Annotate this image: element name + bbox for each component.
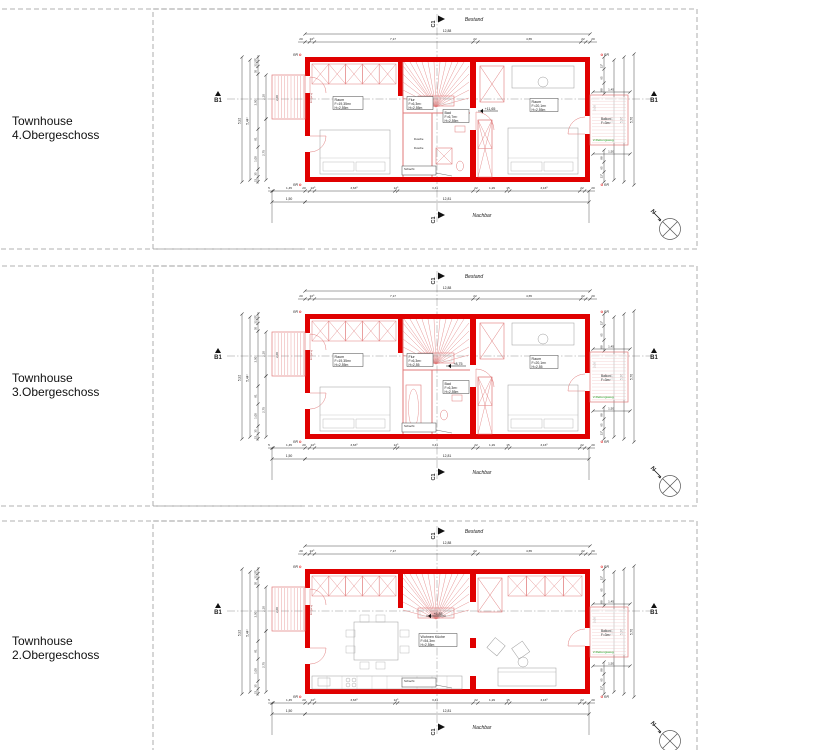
dim-label: 3,16⁵ [540, 698, 548, 702]
section-b1-marker: B1 [650, 98, 658, 104]
dim-label: 20 [591, 294, 595, 298]
balcony-dim: 2,00 [275, 95, 279, 101]
room-left-height: H=2,55m [335, 363, 349, 367]
rr-mark: RR [604, 310, 609, 314]
floorplan-townhouse-2og: C1BestandC1NachbarB1B112,882022⁵7,17224,… [152, 520, 698, 750]
floorplan-townhouse-3og: C1BestandC1NachbarB1B112,882022⁵7,17224,… [152, 265, 698, 507]
dim-label: 22 [581, 37, 585, 41]
dim-label: 1,45 [608, 88, 614, 92]
dim-label: 3,16⁵ [540, 443, 548, 447]
dim-label: 5,70 [630, 117, 634, 123]
drawing-sheet: Townhouse 4.Obergeschoss Townhouse 3.Obe… [0, 0, 818, 750]
dim-label: 12⁵ [394, 698, 399, 702]
rr-mark: RR [604, 440, 609, 444]
floorplan-townhouse-4og: C1BestandC1NachbarB1B112,882022⁵7,17224,… [152, 8, 698, 250]
dim-label: 20 [302, 186, 306, 190]
dim-label: 2,50 [254, 99, 258, 105]
dim-label: 1,29 [489, 186, 495, 190]
rr-mark: RR [604, 53, 609, 57]
dim-label: 5 [268, 698, 270, 702]
dim-label: 35 [254, 172, 258, 176]
section-c1-marker: C1 [431, 473, 437, 480]
dim-label: 81 [254, 137, 258, 141]
section-b1-marker: B1 [214, 355, 222, 361]
dim-label: 22 [580, 186, 584, 190]
dim-label: 88 [600, 156, 604, 160]
dim-label: 2,10 [262, 94, 266, 100]
dim-label: 5 [268, 186, 270, 190]
dim-label: 22 [474, 698, 478, 702]
dim-label: 3,63⁵ [350, 186, 358, 190]
dim-label: 15 [506, 443, 510, 447]
dim-label: 5,44⁵ [246, 374, 250, 382]
dim-label: 1,50 [286, 197, 293, 201]
dim-label: 20 [591, 698, 595, 702]
schacht-note: Schacht [404, 167, 415, 171]
dim-label: 22 [254, 63, 258, 67]
dim-label: 1,00 [254, 413, 258, 419]
section-b1-marker: B1 [214, 610, 222, 616]
nachbar-label: Nachbar [473, 213, 492, 219]
dim-label: 3,63⁵ [350, 698, 358, 702]
panel-title-3og: Townhouse 3.Obergeschoss [12, 371, 152, 399]
rr-mark: RR [604, 695, 609, 699]
balkon-area: F=3m² [601, 121, 610, 125]
entrance-note: Eingang [309, 349, 313, 360]
dim-label: 12,81 [443, 709, 452, 713]
schacht-note: Schacht [404, 424, 415, 428]
section-b1-marker: B1 [650, 355, 658, 361]
dim-label: 1,45 [286, 186, 292, 190]
rettungsweg-label: 2.Rettungsweg [593, 650, 614, 654]
dim-label: 20 [299, 37, 303, 41]
rr-mark: RR [293, 183, 298, 187]
section-b1-marker: B1 [650, 610, 658, 616]
dim-label: 5,92 [238, 118, 242, 124]
dim-label: 88 [600, 600, 604, 604]
rr-mark: RR [293, 53, 298, 57]
dim-label: 20 [591, 186, 595, 190]
dim-label: 4,65 [526, 549, 532, 553]
dim-label: 7,17 [390, 549, 396, 553]
dim-label: 35 [254, 70, 258, 74]
rr-mark: RR [293, 695, 298, 699]
dim-label: 15 [506, 698, 510, 702]
dusche-label: Dusche [414, 146, 424, 150]
dim-label: 4,65 [526, 37, 532, 41]
schacht-note: Schacht [404, 679, 415, 683]
dim-label: 22 [254, 436, 258, 440]
dim-label: 1,29 [489, 443, 495, 447]
dim-label: 65 [600, 678, 604, 682]
dim-label: 5,92 [238, 375, 242, 381]
dim-label: 22 [474, 443, 478, 447]
dim-label: 3,41 [432, 698, 438, 702]
room-right-height: H=2,55 [532, 365, 543, 369]
section-b1-marker: B1 [214, 98, 222, 104]
nachbar-label: Nachbar [473, 725, 492, 731]
bestand-label: Bestand [465, 529, 484, 535]
dim-label: 88 [600, 345, 604, 349]
dim-label: 2,10 [262, 351, 266, 357]
dim-label: 22 [473, 37, 477, 41]
dim-label: 22 [473, 294, 477, 298]
rr-mark: RR [604, 183, 609, 187]
dim-label: 22 [473, 549, 477, 553]
dim-label: 22⁵ [311, 698, 316, 702]
rr-mark: RR [293, 310, 298, 314]
bestand-label: Bestand [465, 17, 484, 23]
dim-label: 5,92 [238, 630, 242, 636]
room-bad-height: H=2,55m [445, 119, 459, 123]
section-c1-marker: C1 [431, 728, 437, 735]
dim-label: 12,88 [443, 286, 452, 290]
dim-label: 5,44⁵ [246, 117, 250, 125]
dim-label: 81 [254, 649, 258, 653]
dim-label: 12,88 [443, 541, 452, 545]
dim-label: 1,45 [608, 345, 614, 349]
section-c1-marker: C1 [431, 20, 437, 27]
room-flur-height: H=2,55 [409, 363, 420, 367]
dim-label: 22 [580, 698, 584, 702]
dim-label: 22 [254, 691, 258, 695]
rettungsweg-label: 2.Rettungsweg [593, 395, 614, 399]
dim-label: 3,41 [432, 186, 438, 190]
dim-label: 1,50 [608, 150, 614, 154]
dim-label: 1,50 [286, 709, 293, 713]
dim-label: 5,44⁵ [246, 629, 250, 637]
dim-label: 2,10 [262, 606, 266, 612]
room-right-height: H=2,55m [532, 108, 546, 112]
dim-label: 20 [591, 549, 595, 553]
dim-label: 2,50 [254, 611, 258, 617]
dim-label: 5,70 [630, 629, 634, 635]
dim-label: 20 [302, 443, 306, 447]
dim-label: 65 [600, 588, 604, 592]
dim-label: 1,45 [608, 600, 614, 604]
balkon-area: F=3m² [601, 633, 610, 637]
dim-label: 65 [600, 333, 604, 337]
level-mark: +5,85 [433, 612, 442, 616]
dim-label: 1,00 [254, 156, 258, 162]
dim-label: 3,63⁵ [350, 443, 358, 447]
dim-label: 7,17 [390, 294, 396, 298]
dim-label: 22⁵ [310, 294, 315, 298]
dim-label: 1,50 [286, 454, 293, 458]
dim-label: 22⁵ [310, 549, 315, 553]
dim-label: 20 [299, 549, 303, 553]
dim-label: 22 [580, 443, 584, 447]
dim-label: 22⁵ [311, 186, 316, 190]
dim-label: 65 [600, 423, 604, 427]
dim-label: 20 [299, 294, 303, 298]
dim-label: 5 [268, 443, 270, 447]
dim-label: 5,70 [630, 374, 634, 380]
dim-label: 22⁵ [311, 443, 316, 447]
dim-label: 20 [591, 443, 595, 447]
dim-label: 22 [254, 575, 258, 579]
dim-label: 20 [591, 37, 595, 41]
dim-label: 65 [600, 76, 604, 80]
dim-label: 88 [600, 88, 604, 92]
dim-label: 22⁵ [310, 37, 315, 41]
dim-label: 12,81 [443, 197, 452, 201]
dim-label: 65 [600, 166, 604, 170]
rettungsweg-label: 2.Rettungsweg [593, 138, 614, 142]
dim-label: 12,81 [443, 454, 452, 458]
panel-title-2og: Townhouse 2.Obergeschoss [12, 634, 152, 662]
dim-label: 20 [302, 698, 306, 702]
dim-label: 3,16⁵ [540, 186, 548, 190]
dim-label: 2,75 [262, 407, 266, 413]
dim-label: 4,65 [526, 294, 532, 298]
entrance-note: Eingang [309, 604, 313, 615]
dim-label: 22 [254, 320, 258, 324]
dim-label: 7,17 [390, 37, 396, 41]
rr-mark: RR [293, 565, 298, 569]
dim-label: 22 [581, 294, 585, 298]
dim-label: 1,00 [254, 668, 258, 674]
dim-label: 88 [600, 413, 604, 417]
level-mark: +11,65 [485, 107, 496, 111]
dim-label: 15 [506, 186, 510, 190]
dim-label: 35 [254, 582, 258, 586]
dim-label: 12,88 [443, 29, 452, 33]
room-main-height: H=2,55m [421, 643, 435, 647]
dim-label: 81 [254, 394, 258, 398]
balcony-dim: 2,00 [275, 607, 279, 613]
dim-label: 12⁵ [394, 186, 399, 190]
dim-label: 35 [254, 684, 258, 688]
entrance-note: Eingang [309, 92, 313, 103]
dim-label: 1,50 [608, 407, 614, 411]
dim-label: 22 [474, 186, 478, 190]
dim-label: 88 [600, 668, 604, 672]
dim-label: 2,75 [262, 662, 266, 668]
section-c1-marker: C1 [431, 277, 437, 284]
dim-label: 22 [581, 549, 585, 553]
dim-label: 1,45 [286, 443, 292, 447]
nachbar-label: Nachbar [473, 470, 492, 476]
rr-mark: RR [293, 440, 298, 444]
level-mark: +8,75 [453, 362, 462, 366]
room-flur-height: H=2,55m [409, 106, 423, 110]
dim-label: 35 [254, 429, 258, 433]
dim-label: 2,75 [262, 150, 266, 156]
dim-label: 1,50 [608, 662, 614, 666]
dim-label: 12⁵ [394, 443, 399, 447]
dim-label: 35 [254, 327, 258, 331]
dim-label: 1,29 [489, 698, 495, 702]
room-bad-height: H=2,55m [445, 390, 459, 394]
section-c1-marker: C1 [431, 532, 437, 539]
dim-label: 2,50 [254, 356, 258, 362]
dusche-label: Dusche [414, 137, 424, 141]
balcony-dim: 2,00 [275, 352, 279, 358]
balkon-area: F=3m² [601, 378, 610, 382]
dim-label: 1,45 [286, 698, 292, 702]
dim-label: 3,41 [432, 443, 438, 447]
section-c1-marker: C1 [431, 216, 437, 223]
room-left-height: H=2,55m [335, 106, 349, 110]
panel-title-4og: Townhouse 4.Obergeschoss [12, 114, 152, 142]
rr-mark: RR [604, 565, 609, 569]
dim-label: 22 [254, 179, 258, 183]
bestand-label: Bestand [465, 274, 484, 280]
